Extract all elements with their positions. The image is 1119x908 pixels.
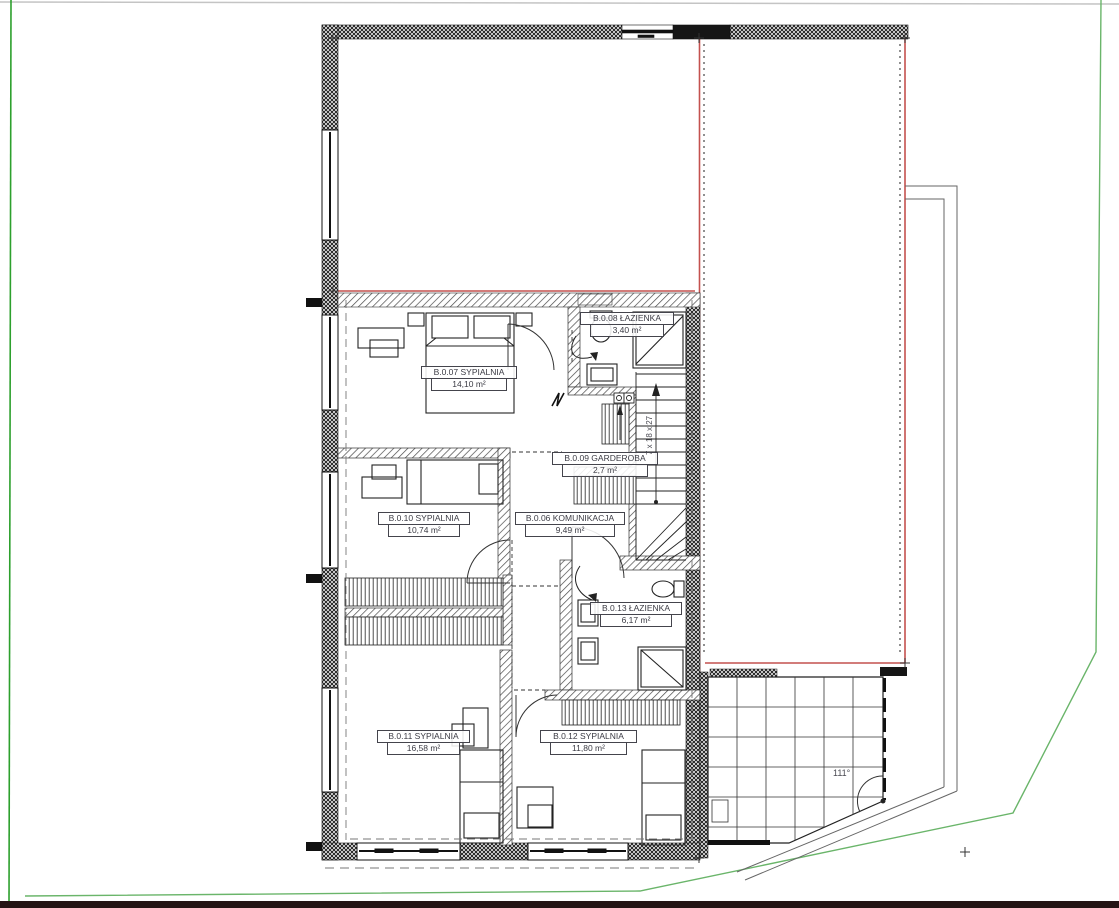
bathroom-b013-fixtures (576, 566, 686, 690)
interior-walls (338, 307, 700, 845)
room-area: 3,40 m² (590, 325, 664, 337)
room-name: B.0.13 ŁAZIENKA (590, 602, 682, 615)
terrace-grid (700, 670, 890, 850)
terrace (700, 667, 907, 858)
room-label-b006: B.0.06 KOMUNIKACJA 9,49 m² (515, 512, 625, 537)
room-area: 10,74 m² (388, 525, 460, 537)
window-top (622, 25, 673, 39)
room-label-b007: B.0.07 SYPIALNIA 14,10 m² (421, 366, 517, 391)
room-b010-furniture (362, 460, 503, 504)
window-left-1 (322, 315, 338, 410)
window-bottom-2 (528, 843, 628, 860)
window-bottom-1 (357, 843, 460, 860)
room-area: 16,58 m² (387, 743, 460, 755)
room-name: B.0.11 SYPIALNIA (377, 730, 470, 743)
window-left-2 (322, 472, 338, 568)
window-left-roof (322, 130, 338, 240)
room-label-b008: B.0.08 ŁAZIENKA 3,40 m² (580, 312, 674, 337)
room-b011-furniture (452, 708, 503, 843)
window-left-3 (322, 688, 338, 792)
room-area: 6,17 m² (600, 615, 672, 627)
bottom-border-bar (0, 901, 1119, 908)
floor-plan-canvas: B.0.07 SYPIALNIA 14,10 m² B.0.08 ŁAZIENK… (0, 0, 1119, 908)
room-name: B.0.07 SYPIALNIA (421, 366, 517, 379)
room-name: B.0.09 GARDEROBA (552, 452, 658, 465)
door-size-markers (614, 393, 634, 403)
stairs-dimension-note: 7 x 18 x 27 (645, 416, 654, 455)
break-line-symbol (552, 393, 564, 406)
room-area: 9,49 m² (525, 525, 615, 537)
terrace-angle-label: 111° (833, 768, 850, 778)
room-name: B.0.08 ŁAZIENKA (580, 312, 674, 325)
room-label-b011: B.0.11 SYPIALNIA 16,58 m² (377, 730, 470, 755)
room-label-b010: B.0.10 SYPIALNIA 10,74 m² (378, 512, 470, 537)
room-label-b009: B.0.09 GARDEROBA 2,7 m² (552, 452, 658, 477)
roof-dashed-lines (704, 44, 900, 655)
room-label-b013: B.0.13 ŁAZIENKA 6,17 m² (590, 602, 682, 627)
room-area: 14,10 m² (431, 379, 507, 391)
room-name: B.0.12 SYPIALNIA (540, 730, 637, 743)
room-name: B.0.06 KOMUNIKACJA (515, 512, 625, 525)
room-b007-furniture (358, 313, 532, 413)
room-name: B.0.10 SYPIALNIA (378, 512, 470, 525)
room-label-b012: B.0.12 SYPIALNIA 11,80 m² (540, 730, 637, 755)
room-area: 11,80 m² (550, 743, 627, 755)
room-area: 2,7 m² (562, 465, 648, 477)
room-b012-furniture (517, 750, 685, 845)
